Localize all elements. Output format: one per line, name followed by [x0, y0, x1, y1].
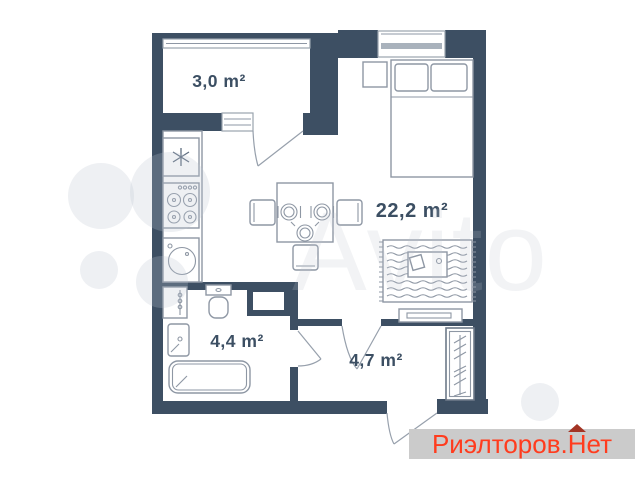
wall-balcony-right-step	[303, 113, 338, 135]
watermark-logo-circle	[521, 383, 559, 421]
bathtub	[169, 361, 250, 393]
room-label-hallway: 4,7 m²	[349, 350, 403, 370]
chair	[250, 200, 275, 225]
balcony-door-arc	[253, 131, 303, 166]
wall-bathroom-hall-lower	[290, 367, 298, 402]
wall-balcony-right	[310, 33, 338, 113]
floorplan-image: 3,0 m² 22,2 m² 4,4 m² 4,7 m² Avito Риэлт…	[0, 0, 640, 478]
bed	[391, 60, 473, 177]
wardrobe	[446, 328, 474, 400]
watermark-logo-circle	[136, 256, 188, 308]
house-roof-icon	[568, 424, 586, 432]
brand-house-letter-glyph: Н	[568, 429, 587, 459]
toilet-tank	[206, 285, 231, 295]
bedroom-window-sill	[381, 43, 442, 49]
watermark-logo-circle	[130, 152, 210, 232]
room-label-bathroom: 4,4 m²	[210, 331, 264, 351]
wall-hall-top-left	[290, 319, 342, 326]
brand-text-suffix: ет	[587, 431, 613, 457]
brand-house-letter: Н	[568, 431, 587, 457]
wall-top-left-of-window	[338, 30, 378, 58]
bathroom-door-arc	[298, 331, 321, 366]
brand-bar: Риэлторов.Нет	[409, 429, 635, 459]
wall-entry-corner	[437, 399, 488, 414]
wall-top-right-of-window	[445, 30, 473, 58]
floorplan-drawing: 3,0 m² 22,2 m² 4,4 m² 4,7 m² Avito	[0, 0, 640, 478]
watermark-text: Avito	[292, 189, 549, 314]
bed-zone	[363, 60, 473, 177]
toilet-bowl	[209, 297, 228, 318]
watermark-logo-circle	[68, 163, 134, 229]
wall-bottom	[152, 401, 387, 414]
nightstand	[363, 62, 387, 87]
watermark-logo-circle	[80, 251, 118, 289]
duct-shaft-inner	[253, 292, 284, 310]
kitchen-window	[222, 113, 253, 131]
room-label-balcony: 3,0 m²	[192, 71, 246, 91]
brand-text-prefix: Риэлторов.	[432, 431, 568, 457]
wall-balcony-partition	[152, 113, 222, 131]
